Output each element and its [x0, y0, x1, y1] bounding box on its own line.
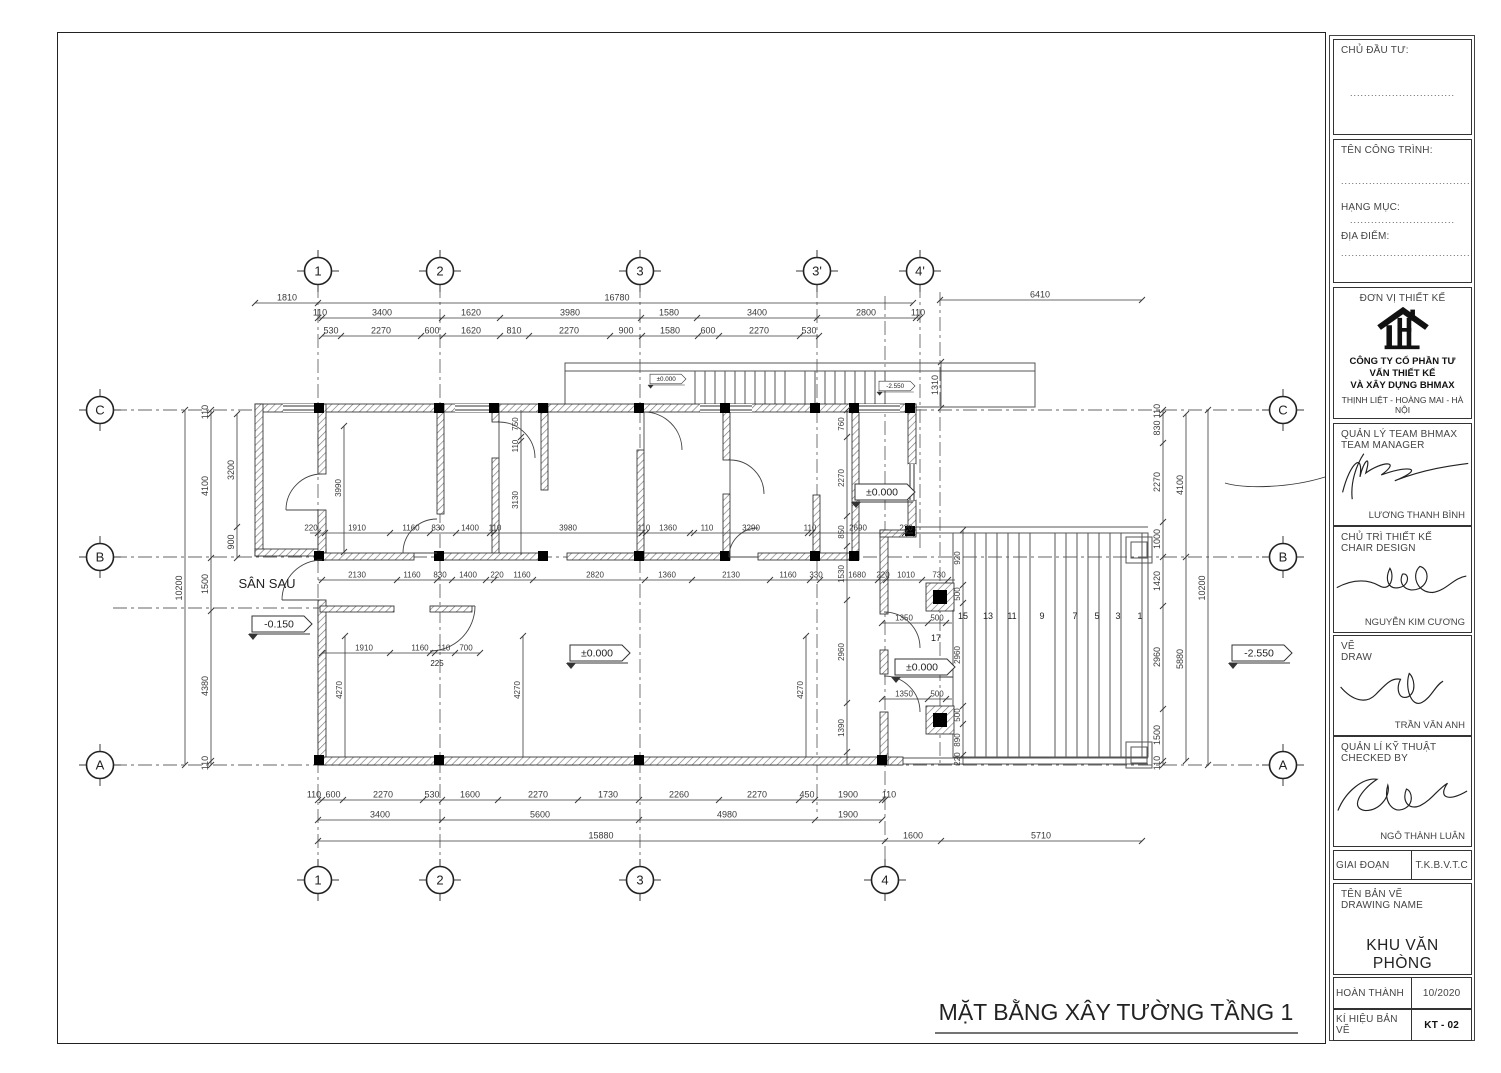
- project-box: TÊN CÔNG TRÌNH: ........................…: [1333, 139, 1472, 283]
- dim-row: 110340016203980158034002800110: [313, 308, 925, 322]
- dim-label: 2960: [953, 646, 962, 664]
- grid-bubble: 4': [899, 250, 941, 292]
- dim-label: 2960: [1152, 647, 1162, 667]
- dim-row: 1310: [930, 359, 944, 411]
- drawing-name-box: TÊN BẢN VẼ DRAWING NAME KHU VĂN PHÒNG: [1333, 883, 1472, 975]
- dim-label: 110: [1152, 756, 1162, 770]
- dim-row: 3400560049801900: [315, 810, 885, 824]
- dim-label: 500: [953, 708, 962, 722]
- draw-box: VẼ DRAW TRẦN VĂN ANH: [1333, 635, 1472, 736]
- grid-bubble-label: 4: [881, 873, 888, 888]
- dim-row: 53022706001620810227090015806002270530: [319, 326, 822, 340]
- dim-label: 900: [618, 326, 633, 336]
- grid-bubble-label: 2: [436, 873, 443, 888]
- dim-label: 2820: [586, 571, 604, 580]
- sheet-code-box: KÍ HIỆU BẢN VẼ KT - 02: [1333, 1009, 1472, 1041]
- dim-row: 10200: [1197, 407, 1211, 768]
- company-logo-icon: [1375, 305, 1431, 351]
- dim-row: 3990: [334, 423, 347, 555]
- grid-bubble: A: [79, 744, 121, 786]
- dim-label: 2270: [1152, 472, 1162, 492]
- dim-label: 1910: [355, 644, 373, 653]
- dim-label: 15880: [588, 831, 613, 841]
- project-dots: ........................................…: [1341, 176, 1464, 186]
- stair-step-number: 1: [1137, 611, 1142, 621]
- stage-label: GIAI ĐOẠN: [1336, 860, 1389, 871]
- elevation-tag: -2.550: [877, 381, 915, 395]
- dim-label: 1600: [903, 831, 923, 841]
- dim-label: 1600: [460, 790, 480, 800]
- completed-box: HOÀN THÀNH 10/2020: [1333, 977, 1472, 1009]
- dim-label: 2260: [669, 790, 689, 800]
- dim-label: 1010: [897, 571, 915, 580]
- dim-label: 2130: [348, 571, 366, 580]
- dim-label: 3400: [747, 308, 767, 318]
- dim-label: 1500: [200, 574, 210, 594]
- dim-label: 2270: [559, 326, 579, 336]
- stage-value: T.K.B.V.T.C: [1415, 860, 1467, 871]
- sheet-code-label: KÍ HIỆU BẢN VẼ: [1336, 1014, 1411, 1036]
- dim-label: 110: [701, 524, 714, 533]
- drawing-name-value: KHU VĂN PHÒNG: [1341, 937, 1464, 973]
- elevation-tag: ±0.000: [851, 484, 915, 508]
- dim-label: 4380: [200, 676, 210, 696]
- dim-label: 920: [953, 551, 962, 565]
- dim-label: 110: [882, 790, 896, 800]
- dim-label: 1310: [930, 375, 940, 395]
- dim-label: 10200: [1197, 575, 1207, 600]
- dim-label: 890: [953, 733, 962, 747]
- dim-label: 3980: [559, 524, 577, 533]
- elevation-value: ±0.000: [906, 662, 938, 674]
- checked-by-box: QUẢN LÍ KỸ THUẬT CHECKED BY NGÔ THÀNH LU…: [1333, 736, 1472, 847]
- stair-step-number: 13: [983, 611, 993, 621]
- dim-label: 1620: [461, 308, 481, 318]
- dim-label: 1400: [459, 571, 477, 580]
- dim-label: 1350: [895, 614, 913, 623]
- dim-row: 4270: [796, 633, 809, 757]
- dim-label: 1620: [461, 326, 481, 336]
- dim-label: 3400: [370, 810, 390, 820]
- drawing-name-label-en: DRAWING NAME: [1341, 900, 1464, 911]
- dim-label: 500: [930, 614, 944, 623]
- dim-label: 1390: [837, 719, 846, 737]
- grid-bubble: 3: [619, 859, 661, 901]
- category-label: HẠNG MỤC:: [1341, 202, 1464, 213]
- grid-bubble-label: B: [1279, 550, 1288, 565]
- dim-label: 730: [932, 571, 946, 580]
- chair-design-label-vi: CHỦ TRÌ THIẾT KẾ: [1341, 532, 1464, 543]
- company-phone: 0904.899.804 - 0833.393.555: [1341, 418, 1464, 419]
- dim-label: 110: [511, 439, 520, 452]
- elevation-value: ±0.000: [657, 376, 677, 383]
- designer-label: ĐƠN VỊ THIẾT KẾ: [1341, 293, 1464, 304]
- team-manager-label-vi: QUẢN LÝ TEAM BHMAX: [1341, 429, 1464, 440]
- stage-box: GIAI ĐOẠN T.K.B.V.T.C: [1333, 850, 1472, 880]
- grid-bubble-label: 3: [636, 264, 643, 279]
- team-manager-signature: [1334, 446, 1471, 504]
- dim-label: 600: [325, 790, 340, 800]
- dim-label: 830: [1152, 420, 1162, 435]
- grid-bubble: 1: [297, 250, 339, 292]
- dim-row: 10200: [174, 407, 188, 768]
- investor-label: CHỦ ĐẦU TƯ:: [1341, 45, 1464, 56]
- dim-label: 600: [424, 326, 439, 336]
- stair-step-number: 3: [1115, 611, 1120, 621]
- dim-label: 1900: [838, 810, 858, 820]
- elevation-value: -0.150: [264, 619, 294, 631]
- dim-label: 3200: [226, 460, 236, 480]
- grid-bubble: 4: [864, 859, 906, 901]
- dim-label: 1160: [779, 571, 797, 580]
- dim-label: 5600: [530, 810, 550, 820]
- dim-label: 530: [801, 326, 816, 336]
- dim-label: 2270: [528, 790, 548, 800]
- dim-label: 110: [804, 524, 817, 533]
- dim-label: 1400: [461, 524, 479, 533]
- stair-step-number: 11: [1007, 611, 1016, 621]
- grid-bubble-label: B: [96, 550, 105, 565]
- dim-row: 19101160110700: [319, 644, 483, 657]
- dim-label: 110: [911, 308, 925, 318]
- dim-label: 4980: [717, 810, 737, 820]
- dim-label: 2800: [856, 308, 876, 318]
- dim-label: 4100: [200, 476, 210, 496]
- grid-bubble-label: 4': [915, 264, 925, 279]
- team-manager-box: QUẢN LÝ TEAM BHMAX TEAM MANAGER LƯƠNG TH…: [1333, 423, 1472, 526]
- dim-label: 2270: [837, 469, 846, 487]
- dim-label: 220: [304, 524, 318, 533]
- dim-label: 500: [953, 587, 962, 601]
- grid-bubble-label: A: [1279, 758, 1288, 773]
- dim-label: 4270: [335, 681, 344, 699]
- dim-label: 1160: [411, 644, 429, 653]
- grid-bubble-label: 1: [314, 873, 321, 888]
- walls: [255, 404, 954, 765]
- dim-label: 850: [837, 525, 846, 539]
- dim-label: 5710: [1031, 831, 1051, 841]
- dim-label: 110: [489, 524, 502, 533]
- completed-label: HOÀN THÀNH: [1336, 988, 1404, 999]
- grid-bubble-label: C: [95, 403, 104, 418]
- company-address: THỊNH LIỆT - HOÀNG MAI - HÀ NỘI: [1341, 395, 1464, 415]
- checked-by-signature: [1334, 759, 1471, 825]
- windows: [283, 404, 916, 500]
- dim-label: 3990: [334, 479, 343, 497]
- dim-row: 9205002960500890220: [953, 527, 966, 766]
- sheet-code-value: KT - 02: [1424, 1020, 1459, 1031]
- dim-label: 5880: [1175, 649, 1185, 669]
- dim-label: 1160: [402, 524, 420, 533]
- grid-bubble-label: 3': [812, 264, 822, 279]
- grid-bubble: B: [79, 536, 121, 578]
- grid-bubble-label: C: [1278, 403, 1287, 418]
- dim-label: 1160: [513, 571, 531, 580]
- grid-bubble: A: [1262, 744, 1304, 786]
- dim-row: 1106002270530160022701730226022704501900…: [307, 790, 896, 804]
- draw-name: TRẦN VĂN ANH: [1395, 720, 1465, 731]
- dim-row: 11083022701000142029601500110: [1152, 404, 1166, 770]
- dim-label: 2270: [749, 326, 769, 336]
- stair-step-number: 15: [958, 611, 968, 621]
- checked-by-name: NGÔ THÀNH LUÂN: [1380, 831, 1465, 842]
- dim-label: 3980: [560, 308, 580, 318]
- dim-label: 750: [511, 417, 520, 431]
- dim-row: 1350500: [879, 614, 952, 627]
- dim-label: 600: [700, 326, 715, 336]
- dim-label: 2130: [722, 571, 740, 580]
- stair-step-number: 5: [1094, 611, 1099, 621]
- grid-bubble: 3': [796, 250, 838, 292]
- elevation-tag: -0.150: [248, 616, 312, 640]
- dim-label: 1360: [659, 524, 677, 533]
- grid-bubble: 2: [419, 250, 461, 292]
- dim-label: 110: [1152, 404, 1162, 418]
- dim-label: 1730: [598, 790, 618, 800]
- dim-label: 330: [809, 571, 823, 580]
- dim-label: 2690: [849, 524, 867, 533]
- dim-label: 830: [431, 524, 445, 533]
- dim-label: 220: [490, 571, 504, 580]
- dim-label: 2270: [373, 790, 393, 800]
- chair-design-box: CHỦ TRÌ THIẾT KẾ CHAIR DESIGN NGUYỄN KIM…: [1333, 526, 1472, 633]
- elevation-tag: ±0.000: [648, 374, 686, 388]
- team-manager-name: LƯƠNG THANH BÌNH: [1369, 510, 1465, 521]
- title-block-frame: CHỦ ĐẦU TƯ: ............................…: [1329, 35, 1475, 1041]
- dim-label: 110: [200, 405, 210, 419]
- grid-bubble-label: 2: [436, 264, 443, 279]
- dim-row: 16780: [318, 293, 916, 307]
- checked-by-label-vi: QUẢN LÍ KỸ THUẬT: [1341, 742, 1464, 753]
- elevation-tag: ±0.000: [891, 659, 955, 683]
- dim-label: 1810: [277, 293, 297, 303]
- dim-label: 110: [313, 308, 327, 318]
- dim-label: 2960: [837, 643, 846, 661]
- location-dots: ........................................…: [1341, 248, 1464, 258]
- dim-label: 3130: [511, 491, 520, 509]
- grid-bubble: C: [1262, 389, 1304, 431]
- dim-row: 110410015004380110: [200, 405, 214, 770]
- room-label: SÂN SAU: [238, 576, 295, 591]
- dim-row: 7602270850153029601390: [837, 407, 850, 765]
- grid-bubble-label: 1: [314, 264, 321, 279]
- plan-texts: MẶT BẰNG XÂY TƯỜNG TẦNG 1SÂN SAU22517151…: [238, 576, 1293, 1025]
- grid-bubble-label: A: [96, 758, 105, 773]
- stair-step-number: 7: [1072, 611, 1077, 621]
- dim-label: 110: [307, 790, 321, 800]
- title-block: CHỦ ĐẦU TƯ: ............................…: [1325, 32, 1478, 1044]
- dim-label: 1580: [659, 308, 679, 318]
- dim-row: 1350500: [879, 690, 952, 703]
- dim-label: 1160: [403, 571, 421, 580]
- chair-design-signature: [1334, 549, 1471, 607]
- dim-label: 1680: [848, 571, 866, 580]
- dim-label: 6410: [1030, 290, 1050, 300]
- elevation-value: ±0.000: [866, 487, 898, 499]
- drawing-name-label-vi: TÊN BẢN VẼ: [1341, 889, 1464, 900]
- dim-label: 110: [638, 524, 651, 533]
- dim-label: 810: [506, 326, 521, 336]
- grid-bubble: 1: [297, 859, 339, 901]
- dim-label: 2270: [371, 326, 391, 336]
- dim-row: 2201910116083014001103980110136011032901…: [304, 524, 913, 537]
- investor-dots: ..............................: [1341, 88, 1464, 98]
- category-dots: ..............................: [1341, 215, 1464, 225]
- dim-label: 10200: [174, 575, 184, 600]
- stair-step-number: 9: [1039, 611, 1044, 621]
- dim-label: 4100: [1175, 475, 1185, 495]
- chair-design-name: NGUYỄN KIM CƯƠNG: [1365, 617, 1465, 628]
- dim-label: 220: [953, 752, 962, 766]
- designer-box: ĐƠN VỊ THIẾT KẾ CÔNG TY CỔ PHẦN TƯ VẤN T…: [1333, 287, 1472, 419]
- dim-label: 4270: [513, 681, 522, 699]
- dim-label: 225: [430, 659, 444, 668]
- dim-label: 1900: [838, 790, 858, 800]
- dim-label: 1360: [658, 571, 676, 580]
- dim-label: 3290: [742, 524, 760, 533]
- dim-label: 530: [424, 790, 439, 800]
- dim-label: 3400: [372, 308, 392, 318]
- dim-label: 760: [837, 417, 846, 431]
- drawing-sheet: 1810167806410110340016203980158034002800…: [0, 0, 1501, 1073]
- dim-row: 4270: [513, 633, 526, 757]
- dim-label: 4270: [796, 681, 805, 699]
- dim-label: 1420: [1152, 571, 1162, 591]
- location-label: ĐỊA ĐIỂM:: [1341, 231, 1464, 242]
- dim-label: 450: [799, 790, 814, 800]
- grid-bubble: C: [79, 389, 121, 431]
- dim-label: 2270: [747, 790, 767, 800]
- dim-label: 830: [433, 571, 447, 580]
- porch-ramp: [565, 363, 1035, 407]
- dim-label: 900: [226, 534, 236, 549]
- investor-box: CHỦ ĐẦU TƯ: ............................…: [1333, 39, 1472, 135]
- dim-row: 1588016005710: [315, 831, 1145, 845]
- floor-plan-canvas: 1810167806410110340016203980158034002800…: [0, 0, 1501, 1073]
- elevation-value: ±0.000: [581, 648, 613, 660]
- dim-label: 1580: [660, 326, 680, 336]
- dim-label: 1350: [895, 690, 913, 699]
- dim-row: 4270: [335, 633, 348, 757]
- drawing-title: MẶT BẰNG XÂY TƯỜNG TẦNG 1: [939, 998, 1294, 1025]
- draw-signature: [1334, 658, 1471, 716]
- dim-row: 3200900: [226, 411, 240, 561]
- dim-row: 1810: [252, 293, 321, 307]
- dim-row: 41005880: [1175, 411, 1189, 764]
- elevation-value: -2.550: [1244, 648, 1274, 660]
- dim-label: 220: [876, 571, 890, 580]
- dim-row: 2130116083014002201160282013602130116033…: [318, 571, 955, 584]
- draw-label-vi: VẼ: [1341, 641, 1464, 652]
- dim-row: 6410: [937, 290, 1145, 304]
- project-label: TÊN CÔNG TRÌNH:: [1341, 145, 1464, 156]
- grid-bubble: 3: [619, 250, 661, 292]
- completed-value: 10/2020: [1423, 988, 1461, 999]
- dim-label: 530: [323, 326, 338, 336]
- dim-label: 700: [459, 644, 473, 653]
- grid-bubble: B: [1262, 536, 1304, 578]
- dim-label: 16780: [604, 293, 629, 303]
- company-name-line1: CÔNG TY CỔ PHẦN TƯ VẤN THIẾT KẾ: [1341, 356, 1464, 380]
- dim-label: 1500: [1152, 725, 1162, 745]
- dim-label: 110: [438, 644, 451, 653]
- dim-label: 1000: [1152, 529, 1162, 549]
- dim-label: 1910: [348, 524, 366, 533]
- company-name-line2: VÀ XÂY DỰNG BHMAX: [1341, 380, 1464, 392]
- dim-label: 110: [200, 756, 210, 770]
- dim-label: 500: [930, 690, 944, 699]
- elevation-tag: ±0.000: [566, 645, 630, 669]
- elevation-value: -2.550: [886, 383, 904, 390]
- dim-label: 220: [899, 524, 913, 533]
- grid-bubble-label: 3: [636, 873, 643, 888]
- grid-bubble: 2: [419, 859, 461, 901]
- stair-step-number: 17: [931, 633, 941, 643]
- elevation-tag: -2.550: [1228, 645, 1292, 669]
